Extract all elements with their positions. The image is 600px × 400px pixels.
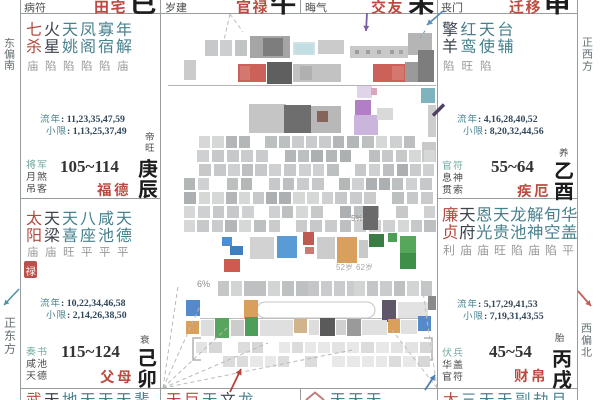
svg-text:5%: 5% bbox=[351, 214, 363, 223]
svg-text:55~64: 55~64 bbox=[491, 157, 534, 176]
svg-text:: 7,19,31,43,55: : 7,19,31,43,55 bbox=[484, 311, 544, 322]
svg-text:: 1,13,25,37,49: : 1,13,25,37,49 bbox=[67, 126, 127, 137]
svg-text:6%: 6% bbox=[197, 279, 210, 289]
svg-text:: 5,17,29,41,53: : 5,17,29,41,53 bbox=[478, 299, 538, 310]
svg-text:: 2,14,26,38,50: : 2,14,26,38,50 bbox=[67, 310, 127, 321]
svg-text:45~54: 45~54 bbox=[489, 342, 532, 361]
svg-text:115~124: 115~124 bbox=[61, 342, 120, 361]
svg-text:: 4,16,28,40,52: : 4,16,28,40,52 bbox=[478, 114, 538, 125]
svg-text:52: 52 bbox=[336, 263, 345, 272]
svg-text:: 11,23,35,47,59: : 11,23,35,47,59 bbox=[61, 114, 125, 125]
svg-text:: 10,22,34,46,58: : 10,22,34,46,58 bbox=[61, 298, 126, 309]
svg-text:62: 62 bbox=[356, 263, 365, 272]
svg-text:105~114: 105~114 bbox=[60, 157, 119, 176]
svg-text:: 8,20,32,44,56: : 8,20,32,44,56 bbox=[484, 126, 544, 137]
